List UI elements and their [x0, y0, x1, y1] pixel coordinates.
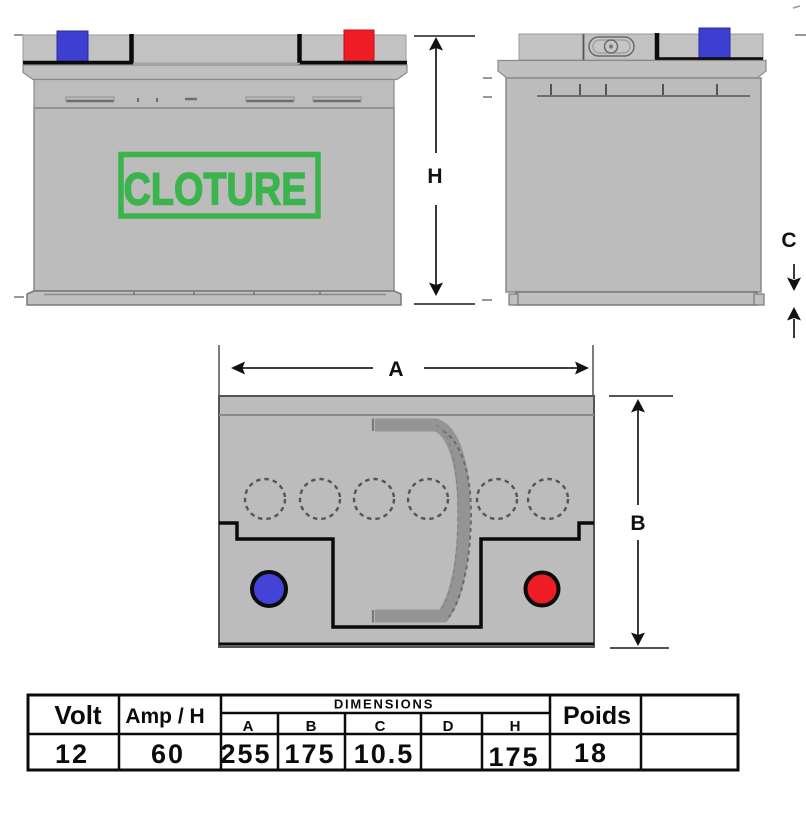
- svg-text:C: C: [781, 229, 796, 252]
- svg-text:60: 60: [151, 739, 185, 769]
- svg-text:12: 12: [55, 739, 89, 769]
- svg-text:175: 175: [284, 739, 335, 769]
- svg-text:Amp / H: Amp / H: [125, 705, 204, 728]
- svg-text:Volt: Volt: [54, 700, 102, 730]
- svg-text:175: 175: [488, 742, 539, 772]
- svg-text:B: B: [630, 512, 645, 535]
- svg-text:A: A: [243, 718, 254, 735]
- svg-text:H: H: [427, 165, 442, 188]
- svg-text:D: D: [443, 718, 454, 735]
- svg-text:H: H: [510, 718, 521, 735]
- svg-text:Poids: Poids: [563, 702, 631, 730]
- svg-text:CLOTURE: CLOTURE: [124, 164, 307, 215]
- svg-text:18: 18: [574, 738, 608, 768]
- svg-text:A: A: [388, 358, 403, 381]
- svg-text:255: 255: [220, 739, 271, 769]
- svg-text:DIMENSIONS: DIMENSIONS: [334, 697, 434, 712]
- svg-text:B: B: [306, 718, 317, 735]
- svg-text:10.5: 10.5: [354, 739, 415, 769]
- svg-text:C: C: [375, 718, 386, 735]
